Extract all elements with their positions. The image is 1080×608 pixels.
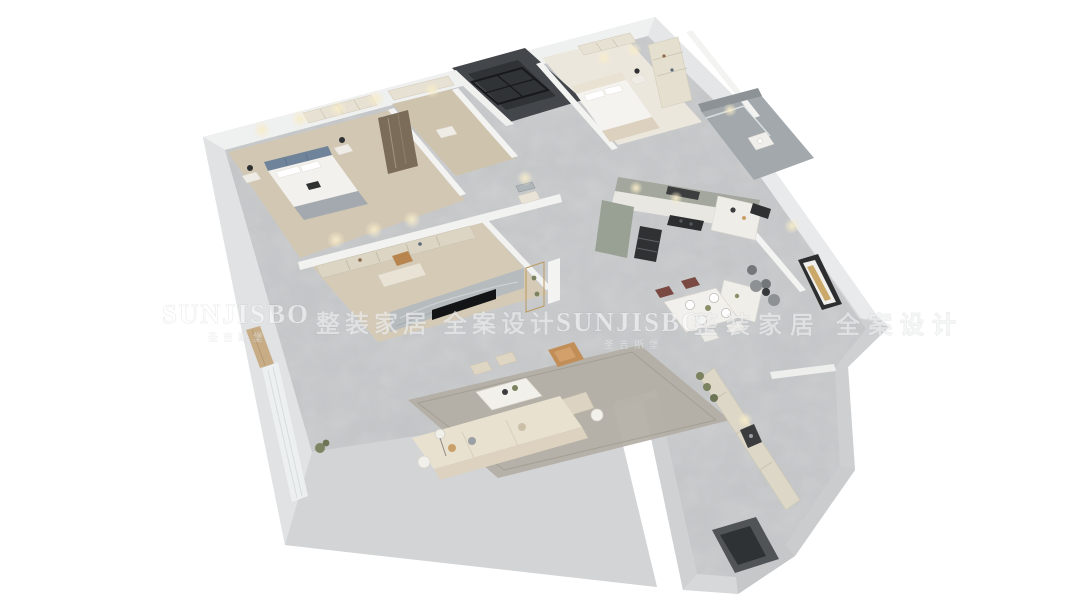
watermark-phrase-left: 整装家居 全案设计 <box>316 310 559 338</box>
watermark-brand-mid: SUNJISBO <box>556 307 704 337</box>
spotlight-glow <box>365 221 383 239</box>
tall-cabinet <box>595 200 634 258</box>
kitchen-item <box>742 216 746 220</box>
coffee-machine <box>730 207 735 212</box>
spotlight-glow <box>403 211 421 229</box>
white-column <box>548 258 560 304</box>
plate <box>709 293 718 302</box>
cafe-chair <box>750 280 762 292</box>
table-bowl <box>502 389 508 395</box>
burner <box>679 219 682 222</box>
table-plant <box>512 385 518 391</box>
book-accent <box>358 258 362 262</box>
niche-appliance <box>749 434 753 438</box>
cafe-table <box>762 288 770 296</box>
spotlight-glow <box>367 90 385 108</box>
cafe-chair <box>768 294 780 306</box>
side-table <box>591 409 603 421</box>
centerpiece-vase <box>705 305 711 311</box>
basin <box>758 139 763 144</box>
bar-item <box>735 294 739 298</box>
spotlight-glow <box>327 231 345 249</box>
spotlight-glow <box>253 121 271 139</box>
spotlight-glow <box>596 50 612 66</box>
floor-plant <box>323 440 330 447</box>
spotlight-glow <box>626 42 642 58</box>
spotlight-glow <box>517 170 533 186</box>
shelf-plant <box>532 276 537 281</box>
book-accent <box>662 54 665 57</box>
watermark-brand-left: SUNJISBO <box>162 299 310 329</box>
throw-pillow <box>518 423 526 431</box>
throw-pillow <box>448 444 456 452</box>
bar-stool <box>747 265 757 275</box>
spotlight-glow <box>424 82 440 98</box>
spotlight-glow <box>329 100 347 118</box>
floor-plan-canvas: SUNJISBO 圣吉斯堡 整装家居 全案设计 SUNJISBO 圣吉斯堡 整装… <box>0 0 1080 608</box>
watermark-brand-left-sub: 圣吉斯堡 <box>208 331 268 344</box>
potted-plant <box>710 394 718 402</box>
spotlight-glow <box>784 218 800 234</box>
spotlight-glow <box>291 110 309 128</box>
floor-lamp-shade <box>435 429 445 439</box>
table-lamp <box>247 165 253 171</box>
burner <box>689 222 692 225</box>
bar-stool <box>761 279 771 289</box>
book-accent <box>418 242 422 246</box>
shelf-plant <box>535 292 540 297</box>
spotlight-glow <box>669 191 683 205</box>
round-side-table <box>418 456 430 468</box>
spotlight-glow <box>737 412 753 428</box>
spotlight-glow <box>629 181 643 195</box>
potted-plant <box>703 383 711 391</box>
throw-pillow <box>468 437 476 445</box>
spotlight-glow <box>723 103 737 117</box>
floor-plan-render: SUNJISBO 圣吉斯堡 整装家居 全案设计 SUNJISBO 圣吉斯堡 整装… <box>0 0 1080 608</box>
book-accent <box>670 68 673 71</box>
potted-plant <box>696 372 704 380</box>
watermark-brand-mid-sub: 圣吉斯堡 <box>604 338 664 351</box>
table-lamp <box>339 137 345 143</box>
table-lamp <box>634 68 639 73</box>
watermark-phrase-right: 整装家居 全案设计 <box>694 311 964 339</box>
